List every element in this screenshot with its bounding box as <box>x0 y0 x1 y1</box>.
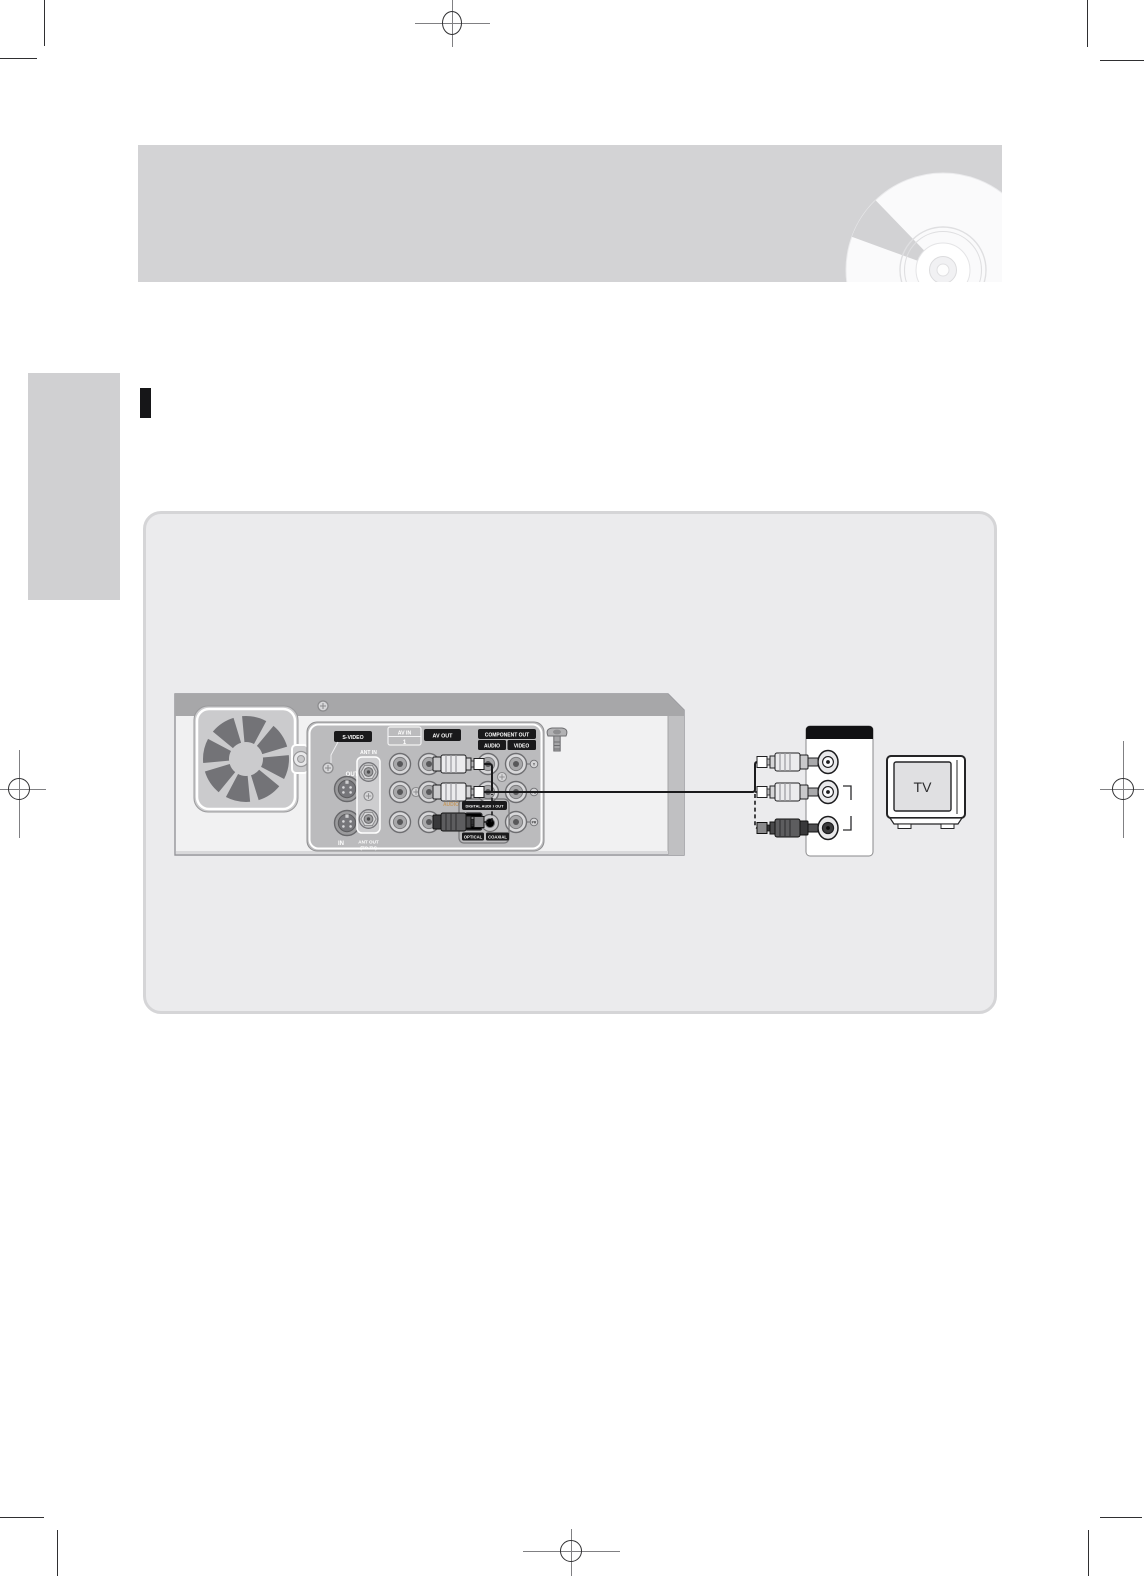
tv-screen-label: TV <box>914 779 933 795</box>
component-video-jack-y <box>506 754 527 775</box>
screw-icon <box>498 773 507 782</box>
s-video-label: S-VIDEO <box>342 735 363 741</box>
s-video-out-jack <box>335 777 360 802</box>
section-marker-bar <box>140 388 151 418</box>
cooling-fan <box>194 706 309 812</box>
registration-mark <box>1112 778 1134 800</box>
s-video-in-jack <box>335 811 360 836</box>
crop-mark <box>1100 60 1144 61</box>
av-out-label: AV OUT <box>433 734 454 740</box>
crop-mark <box>44 0 45 46</box>
component-video-label: VIDEO <box>514 744 530 750</box>
crop-mark <box>1087 0 1088 47</box>
header-band <box>138 145 1002 282</box>
ant-out-label: ANT OUT <box>358 840 379 845</box>
av-in-jack-audio-l <box>390 782 411 803</box>
component-out-label: COMPONENT OUT <box>485 733 529 739</box>
av-in-label: AV IN <box>398 731 412 737</box>
tv-set: TV <box>887 756 965 829</box>
svg-text:PR: PR <box>532 821 537 825</box>
tv-jack-video <box>818 751 838 774</box>
tv-jack-audio <box>818 781 838 804</box>
tv-jack-coaxial <box>818 817 838 840</box>
s-video-in-label: IN <box>338 841 344 847</box>
manual-page: S-VIDEO OUT IN ANT IN ANT OUT (TO TV) AV… <box>0 0 1144 1576</box>
crop-mark <box>1088 1530 1089 1576</box>
crop-mark <box>1100 1517 1142 1518</box>
av-in-jack-video <box>390 754 411 775</box>
ant-out-sub-label: (TO TV) <box>360 846 377 851</box>
crop-mark <box>0 58 37 59</box>
screw-icon <box>364 792 373 801</box>
ant-in-jack <box>359 763 378 782</box>
chapter-side-tab <box>28 373 120 600</box>
connector-plate: S-VIDEO OUT IN ANT IN ANT OUT (TO TV) AV… <box>307 722 544 851</box>
crop-mark <box>0 1517 44 1518</box>
crop-mark <box>57 1530 58 1576</box>
coaxial-label: COAXIAL <box>488 835 507 840</box>
component-audio-label: AUDIO <box>484 744 500 750</box>
digital-audio-out-label: DIGITAL AUDIO OUT <box>466 804 505 809</box>
av-in-jack-audio-r <box>390 812 411 833</box>
registration-mark <box>8 778 30 800</box>
ant-in-label: ANT IN <box>360 750 377 756</box>
screw-icon <box>323 763 333 773</box>
recorder-rear-panel: S-VIDEO OUT IN ANT IN ANT OUT (TO TV) AV… <box>175 694 684 855</box>
connection-diagram: S-VIDEO OUT IN ANT IN ANT OUT (TO TV) AV… <box>160 676 1000 876</box>
registration-mark <box>442 11 462 35</box>
panel-header-bar <box>806 726 873 739</box>
ant-out-jack <box>359 810 378 829</box>
cd-disc-graphic <box>138 145 1002 282</box>
audio-label: AUDIO <box>443 802 459 808</box>
screw-icon <box>318 701 328 711</box>
optical-label: OPTICAL <box>464 835 483 840</box>
registration-mark <box>560 1540 582 1562</box>
